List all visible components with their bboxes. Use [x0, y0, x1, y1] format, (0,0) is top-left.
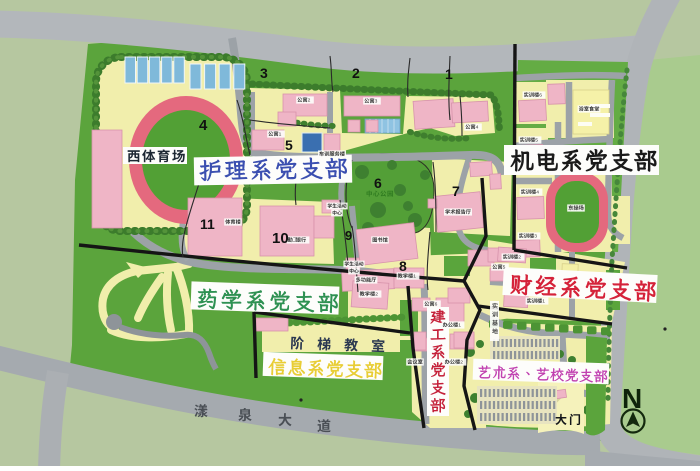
svg-text:7: 7	[452, 183, 460, 199]
svg-text:11: 11	[200, 216, 215, 232]
svg-text:1: 1	[445, 66, 453, 82]
svg-text:6: 6	[374, 175, 382, 191]
svg-text:3: 3	[260, 65, 268, 81]
svg-text:9: 9	[345, 228, 352, 243]
svg-text:8: 8	[399, 258, 407, 274]
svg-text:2: 2	[352, 65, 360, 81]
svg-text:5: 5	[285, 137, 293, 153]
svg-text:10: 10	[272, 230, 289, 247]
svg-text:4: 4	[199, 117, 208, 134]
